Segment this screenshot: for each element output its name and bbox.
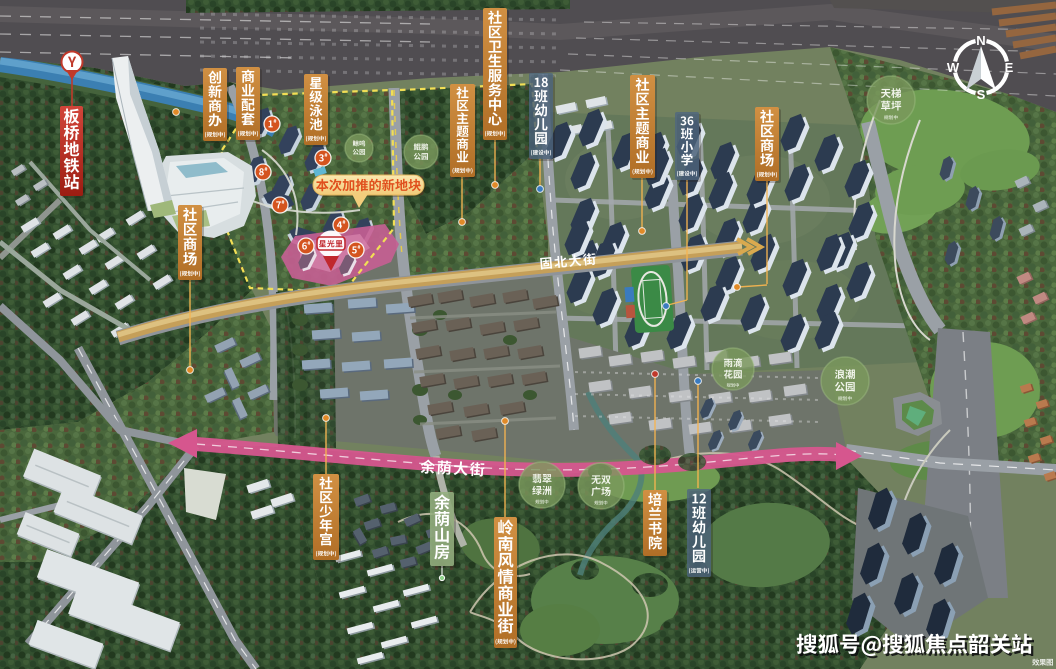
svg-text:E: E — [1005, 60, 1014, 75]
svg-text:W: W — [947, 60, 960, 75]
svg-text:S: S — [977, 87, 986, 102]
svg-text:N: N — [976, 33, 985, 48]
